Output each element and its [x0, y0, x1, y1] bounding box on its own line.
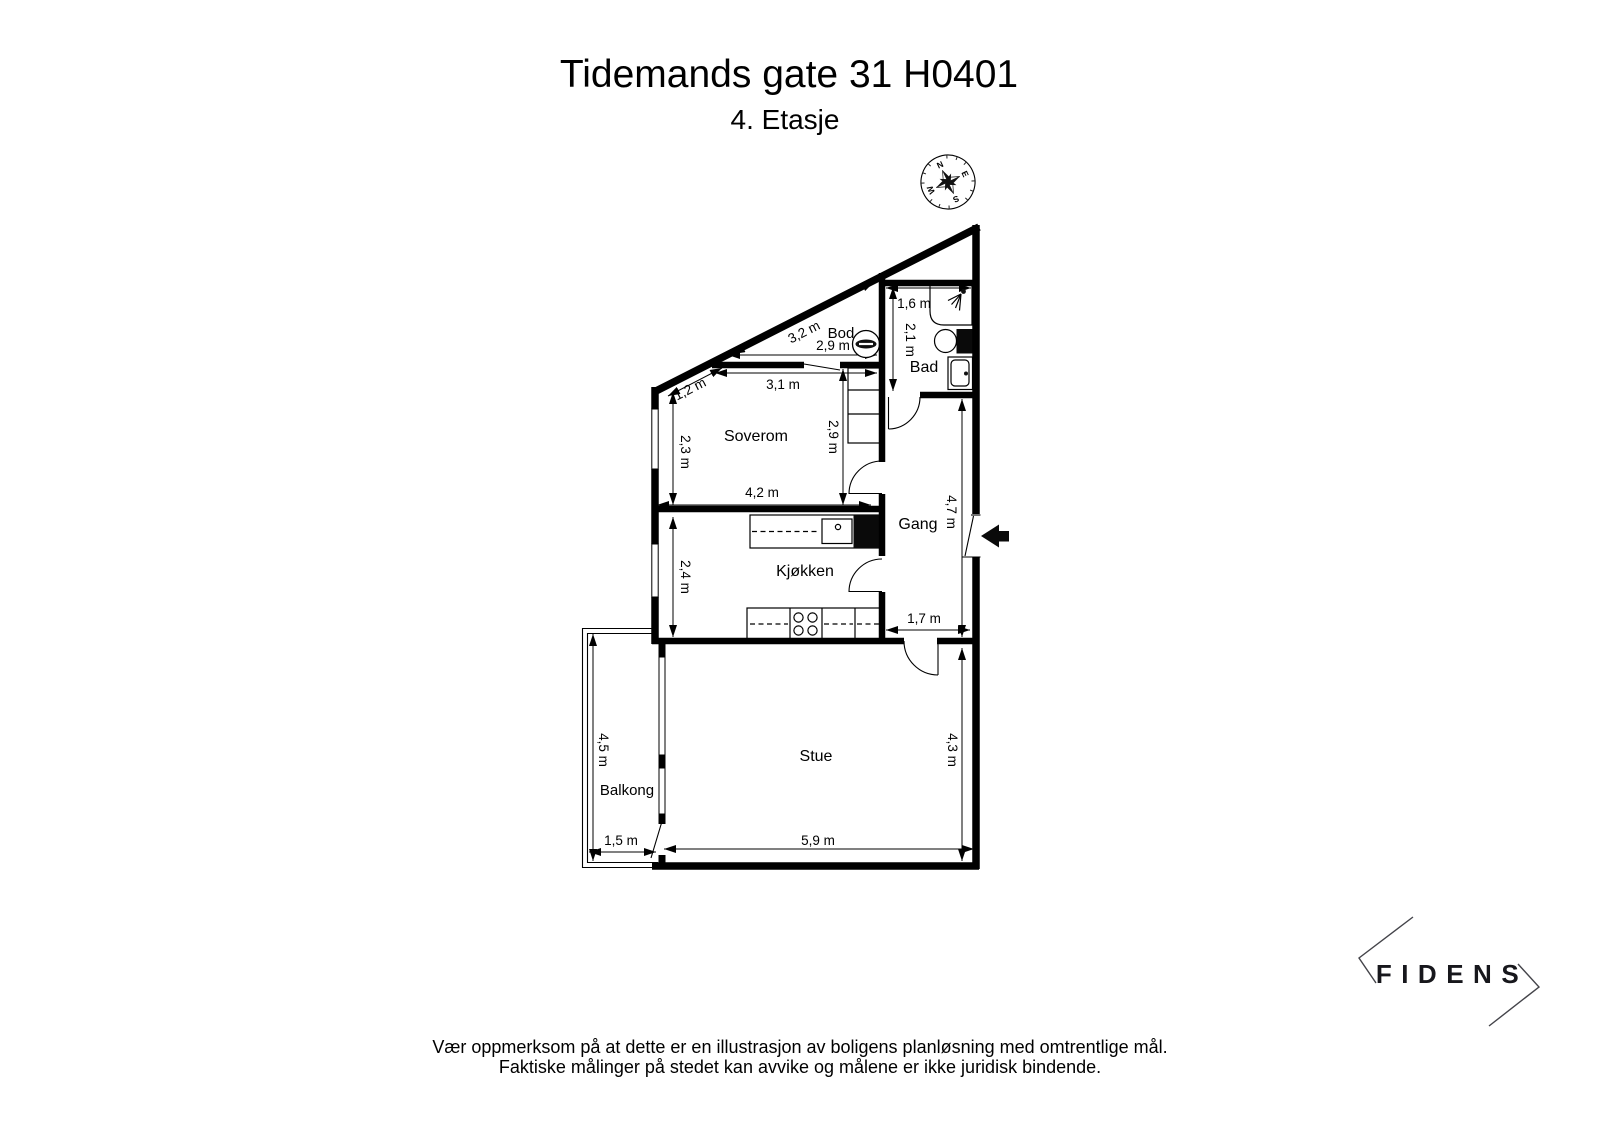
dim-stue-bottom: 5,9 m	[801, 833, 835, 848]
window-stue-1	[659, 657, 665, 755]
room-label-soverom: Soverom	[724, 428, 788, 445]
logo-text: FIDENS	[1376, 959, 1528, 989]
compass-icon: N E S W	[912, 146, 984, 218]
window-soverom	[652, 409, 658, 469]
dim-bad-height: 2,1 m	[903, 323, 918, 357]
compass-west-label: W	[924, 183, 937, 195]
shower-icon	[930, 286, 972, 325]
door-gang-stue	[904, 641, 938, 675]
toilet-icon	[935, 329, 974, 354]
fixtures	[747, 286, 973, 640]
dim-stue-right: 4,3 m	[945, 733, 960, 767]
door-soverom	[849, 461, 882, 494]
balcony-outline	[583, 629, 659, 868]
compass-north-label: N	[935, 159, 945, 171]
room-label-gang: Gang	[898, 516, 937, 533]
washing-machine-icon	[853, 331, 880, 358]
room-label-balkong: Balkong	[600, 782, 654, 799]
dim-bod-width: 2,9 m	[816, 338, 850, 353]
fridge-icon	[854, 515, 881, 548]
floor-plan-canvas: Tidemands gate 31 H0401 4. Etasje	[0, 0, 1600, 1131]
compass-star	[931, 165, 966, 200]
page-subtitle: 4. Etasje	[731, 104, 840, 135]
dim-soverom-bottom: 4,2 m	[745, 485, 779, 500]
dim-soverom-top: 3,1 m	[766, 377, 800, 392]
page-title: Tidemands gate 31 H0401	[560, 53, 1018, 96]
door-balkong	[651, 823, 662, 858]
sink-icon	[948, 357, 973, 390]
stove-icon	[794, 613, 817, 635]
compass-east-label: E	[959, 169, 971, 179]
dim-bad-width: 1,6 m	[897, 296, 931, 311]
door-kjokken	[849, 559, 882, 592]
kitchen-counter-top	[750, 515, 880, 548]
disclaimer-line-1: Vær oppmerksom på at dette er en illustr…	[432, 1037, 1167, 1057]
room-label-stue: Stue	[800, 748, 833, 765]
dim-balkong-left: 4,5 m	[596, 733, 611, 767]
kitchen-counter-bottom	[747, 608, 884, 640]
room-label-kjokken: Kjøkken	[776, 563, 834, 580]
compass-south-label: S	[951, 193, 961, 205]
door-entrance	[962, 515, 981, 557]
dim-soverom-left: 2,3 m	[678, 435, 693, 469]
dim-gang-width: 1,7 m	[907, 611, 941, 626]
room-labels: Bod Bad Soverom Gang Kjøkken Stue Balkon…	[600, 325, 938, 799]
dim-soverom-right: 2,9 m	[826, 420, 841, 454]
floor-plan-page: Tidemands gate 31 H0401 4. Etasje	[0, 0, 1600, 1131]
dim-balkong-bottom: 1,5 m	[604, 833, 638, 848]
door-bad	[889, 397, 921, 429]
window-stue-2	[659, 768, 665, 814]
door-bod	[804, 364, 840, 370]
fidens-logo: FIDENS	[1359, 917, 1539, 1026]
dim-gang-height: 4,7 m	[944, 495, 959, 529]
disclaimer-line-2: Faktiske målinger på stedet kan avvike o…	[499, 1057, 1101, 1077]
entrance-arrow-icon	[981, 525, 1009, 548]
dim-kjokken-left: 2,4 m	[678, 560, 693, 594]
room-label-bad: Bad	[910, 359, 938, 376]
kitchen-sink-icon	[822, 519, 852, 544]
wardrobe-icon	[848, 368, 882, 443]
window-kjokken	[652, 544, 658, 597]
